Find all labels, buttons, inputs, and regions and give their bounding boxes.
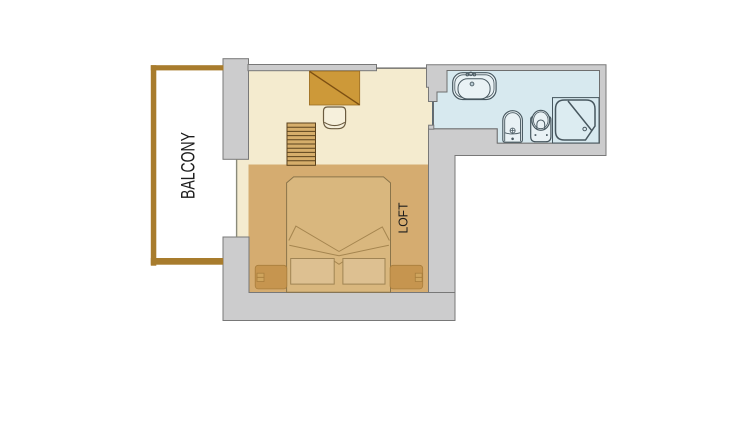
svg-text:LOFT: LOFT (397, 202, 411, 233)
svg-text:BALCONY: BALCONY (178, 132, 200, 199)
